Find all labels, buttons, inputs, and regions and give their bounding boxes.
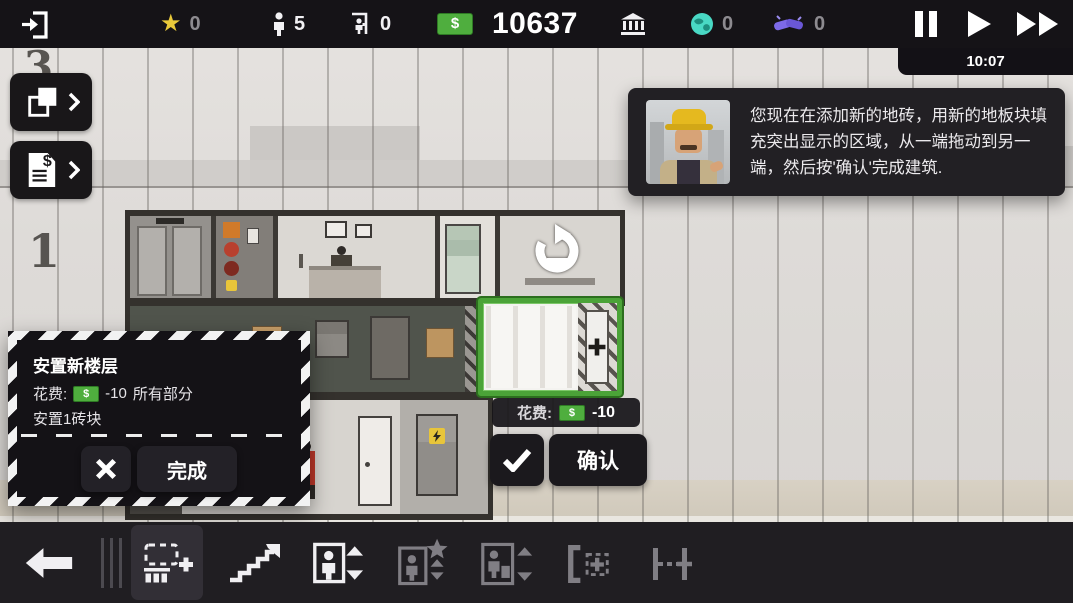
- done-button[interactable]: 完成: [137, 446, 237, 492]
- open-edge-hatch: [465, 306, 478, 392]
- tile-window-lines: [486, 306, 576, 388]
- cost-value: -10: [105, 385, 127, 402]
- poster: [223, 222, 240, 238]
- stat-prestige: ★ 0: [160, 0, 201, 48]
- tool-elevator[interactable]: [306, 536, 370, 590]
- cabinet-nook: [437, 216, 497, 298]
- elevator-shaft: [130, 216, 213, 298]
- add-floor-icon: [141, 541, 193, 585]
- handshake-icon: [772, 13, 806, 35]
- back-button[interactable]: [18, 542, 80, 584]
- lightning-badge: [226, 280, 237, 291]
- finances-menu-button[interactable]: $: [10, 141, 92, 199]
- exit-door-icon: [20, 9, 52, 39]
- cost-label: 花费:: [517, 402, 552, 423]
- door: [358, 416, 392, 506]
- confirm-check-button[interactable]: [490, 434, 544, 486]
- wall-mullion: [435, 216, 440, 298]
- tool-extend-floor-right[interactable]: [642, 538, 702, 590]
- stat-money: $ 10637: [437, 0, 578, 48]
- poster: [224, 261, 239, 276]
- staff-value: 5: [294, 13, 305, 36]
- wall-mullion: [273, 216, 278, 298]
- pause-icon: [914, 10, 938, 38]
- tutorial-tooltip: 您现在在添加新的地砖，用新的地板块填充突出显示的区域，从一端拖动到另一端，然后按…: [628, 88, 1065, 196]
- floor-label-1: 1: [28, 224, 60, 278]
- new-floor-tile-highlight[interactable]: [478, 298, 622, 396]
- panel-detail: 安置1砖块: [33, 408, 285, 429]
- stat-city: [620, 0, 646, 48]
- picture-frame: [325, 221, 347, 238]
- visitors-value: 0: [380, 13, 391, 36]
- influence-value: 0: [722, 13, 733, 36]
- tool-escalator[interactable]: [222, 538, 288, 588]
- close-icon: [95, 458, 117, 480]
- fast-forward-button[interactable]: [1014, 8, 1062, 40]
- money-icon: $: [437, 13, 473, 35]
- electrical-panel: [416, 414, 458, 496]
- elevator-indicator: [156, 218, 184, 224]
- star-icon: ★: [160, 12, 182, 36]
- bank-icon: [620, 12, 646, 36]
- visitor-door-icon: [348, 12, 372, 36]
- check-icon: [502, 448, 532, 472]
- panel-cost-line: 花费: $ -10 所有部分: [33, 383, 285, 404]
- door-handle: [365, 462, 370, 467]
- panel-buttons: 完成: [17, 446, 301, 492]
- utility-room: [400, 400, 488, 514]
- stat-visitors: 0: [348, 0, 391, 48]
- poster-wall: [213, 216, 275, 298]
- reception-desk: [309, 266, 381, 298]
- placement-cost-chip: 花费: $ -10: [492, 398, 640, 427]
- wall-mullion: [211, 216, 216, 298]
- express-elevator-icon: [396, 537, 452, 589]
- money-value: 10637: [492, 7, 578, 41]
- person-icon: [272, 12, 286, 36]
- chevron-right-icon: [68, 160, 80, 180]
- shelving: [370, 316, 410, 380]
- clock-display: 10:07: [898, 48, 1073, 75]
- confirm-button[interactable]: 确认: [549, 434, 647, 486]
- elevator-door: [137, 226, 167, 296]
- tool-express-elevator[interactable]: [390, 534, 458, 592]
- exit-button[interactable]: [14, 6, 58, 42]
- back-arrow-icon: [24, 546, 74, 580]
- build-panel-body: 安置新楼层 花费: $ -10 所有部分 安置1砖块 完成: [17, 340, 301, 497]
- wall-mullion: [495, 216, 500, 298]
- stat-influence: 0: [690, 0, 733, 48]
- tutorial-text: 您现在在添加新的地砖，用新的地板块填充突出显示的区域，从一端拖动到另一端，然后按…: [750, 103, 1049, 181]
- elevator-icon: [312, 540, 364, 586]
- play-icon: [966, 10, 992, 38]
- extend-floor-right-icon: [648, 543, 696, 585]
- portrait-hardhat-brim: [665, 124, 713, 130]
- cost-label: 花费:: [33, 383, 67, 404]
- tool-extend-floor-left[interactable]: [558, 538, 620, 590]
- layers-icon: [24, 84, 62, 120]
- money-icon: $: [73, 386, 99, 402]
- elevator-door: [172, 226, 202, 296]
- escalator-icon: [228, 542, 282, 584]
- extend-floor-left-icon: [564, 543, 614, 585]
- tool-service-elevator[interactable]: [474, 536, 540, 592]
- top-status-bar: ★ 0 5 0 $ 10637: [0, 0, 1073, 48]
- base-slab: [125, 514, 493, 520]
- tile-plus-marker: [585, 310, 609, 384]
- chevron-right-icon: [68, 92, 80, 112]
- build-toolbar: [0, 522, 1073, 603]
- shelving: [315, 320, 349, 358]
- plus-icon: [587, 335, 607, 359]
- picture-frame: [355, 224, 372, 238]
- cost-value: -10: [592, 404, 615, 422]
- stat-contacts: 0: [772, 0, 825, 48]
- floors-menu-button[interactable]: [10, 73, 92, 131]
- lightning-badge: [429, 428, 445, 444]
- panel-divider: [21, 434, 297, 437]
- game-screen: 3 1: [0, 0, 1073, 603]
- fast-forward-icon: [1016, 10, 1060, 38]
- panel-title: 安置新楼层: [33, 352, 285, 377]
- globe-icon: [690, 12, 714, 36]
- money-icon: $: [559, 405, 585, 421]
- contacts-value: 0: [814, 13, 825, 36]
- invoice-icon: $: [24, 150, 58, 190]
- pending-build-rotate-icon: [525, 222, 589, 280]
- pause-button[interactable]: [908, 8, 944, 40]
- prestige-value: 0: [190, 13, 201, 36]
- portrait-overalls: [677, 160, 700, 184]
- reception-room: [275, 216, 437, 298]
- portrait-hardhat: [672, 109, 706, 125]
- sign: [247, 228, 259, 244]
- build-panel: 安置新楼层 花费: $ -10 所有部分 安置1砖块 完成: [8, 331, 310, 506]
- portrait-mustache: [680, 145, 697, 150]
- crate: [426, 328, 454, 358]
- unfinished-office: [497, 216, 620, 298]
- svg-text:$: $: [43, 152, 52, 170]
- right-wall-upper: [620, 210, 625, 302]
- display-cabinet: [445, 224, 481, 294]
- advisor-portrait: [646, 100, 730, 184]
- stat-staff: 5: [272, 0, 305, 48]
- lamp: [299, 254, 303, 268]
- receptionist-head: [337, 246, 346, 255]
- play-button[interactable]: [962, 8, 996, 40]
- cost-scope: 所有部分: [133, 383, 193, 404]
- cancel-button[interactable]: [81, 446, 131, 492]
- service-elevator-icon: [480, 540, 534, 588]
- toolbar-grip: [96, 536, 126, 590]
- poster: [224, 242, 239, 257]
- tool-add-floor[interactable]: [131, 525, 203, 600]
